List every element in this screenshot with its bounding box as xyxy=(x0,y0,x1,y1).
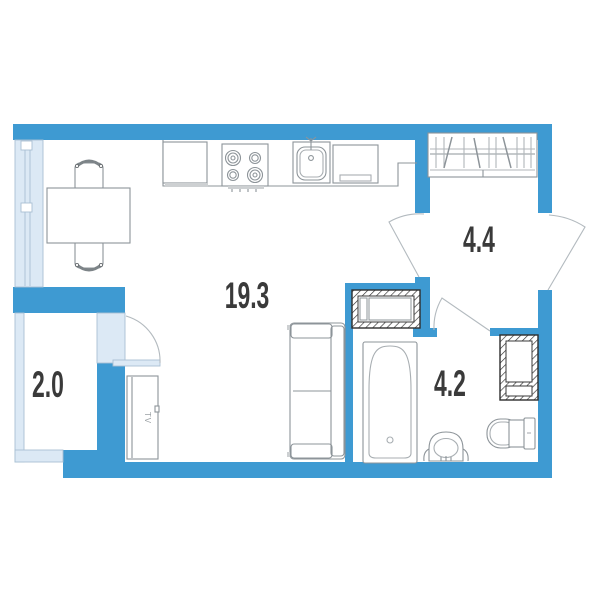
wall-bottom xyxy=(63,462,552,478)
tv-stand-label: TV xyxy=(143,412,152,424)
dining-table xyxy=(47,188,130,243)
wall-left-mid-chunk xyxy=(13,287,125,313)
wardrobe xyxy=(428,133,537,177)
wall-left-lower xyxy=(97,362,125,462)
bathtub xyxy=(363,342,417,463)
fridge xyxy=(163,142,208,187)
stove xyxy=(222,144,268,192)
bathroom-cabinet xyxy=(500,335,538,400)
room-label-living: 19.3 xyxy=(225,274,270,316)
balcony-door-panel xyxy=(97,313,125,363)
window-frame-mark xyxy=(21,203,32,212)
room-label-bathroom: 4.2 xyxy=(434,362,466,404)
wall-bath-top-left xyxy=(413,328,437,337)
wall-niche-top xyxy=(345,283,423,290)
window-frame-mark xyxy=(21,141,32,150)
kitchen-sink xyxy=(293,137,330,183)
wall-right-upper xyxy=(538,140,552,213)
room-label-balcony: 2.0 xyxy=(32,363,64,405)
balcony-glazing-left xyxy=(15,313,24,462)
wall-right-lower xyxy=(538,290,552,478)
room-label-hallway: 4.4 xyxy=(463,218,495,260)
floor-plan: 19.3 4.4 2.0 4.2 TV xyxy=(0,0,600,600)
toilet xyxy=(487,418,535,449)
sofa xyxy=(287,323,345,459)
balcony-glazing-bottom xyxy=(15,450,63,462)
balcony-door-leaf xyxy=(113,360,160,366)
window-left xyxy=(15,140,43,287)
wall-bottom-left-corner xyxy=(63,450,125,478)
washing-machine xyxy=(352,290,420,328)
dishwasher xyxy=(333,145,378,183)
tv-stand xyxy=(127,376,159,459)
